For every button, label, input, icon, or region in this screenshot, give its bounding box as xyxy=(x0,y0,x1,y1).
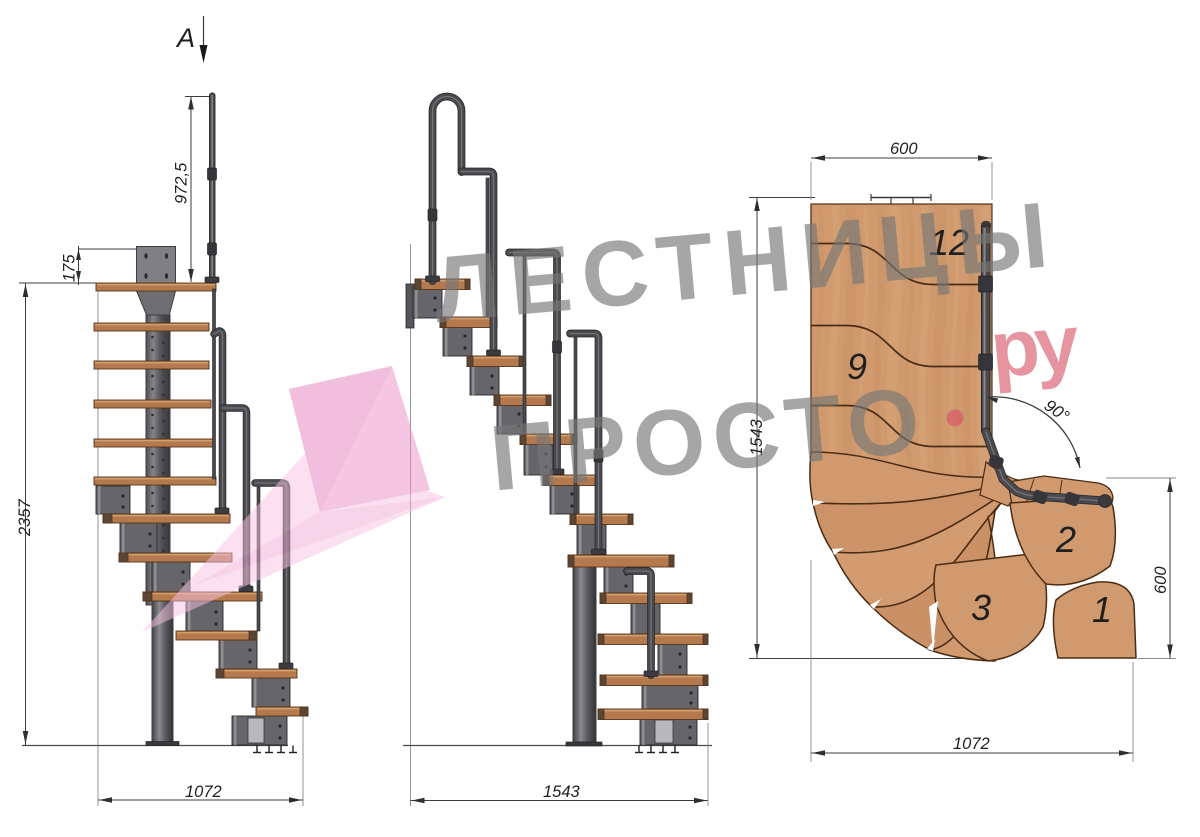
svg-text:1: 1 xyxy=(1092,589,1112,630)
svg-text:972,5: 972,5 xyxy=(173,162,191,204)
svg-text:3: 3 xyxy=(971,587,991,628)
svg-text:1072: 1072 xyxy=(185,783,222,801)
svg-text:175: 175 xyxy=(61,254,79,282)
svg-text:2: 2 xyxy=(1055,519,1076,560)
svg-text:1072: 1072 xyxy=(953,735,990,753)
svg-text:ру: ру xyxy=(987,298,1084,395)
svg-text:1543: 1543 xyxy=(543,783,581,801)
svg-text:2357: 2357 xyxy=(16,498,34,537)
svg-text:600: 600 xyxy=(1152,566,1170,594)
svg-text:600: 600 xyxy=(890,140,918,158)
svg-text:A: A xyxy=(175,23,195,53)
